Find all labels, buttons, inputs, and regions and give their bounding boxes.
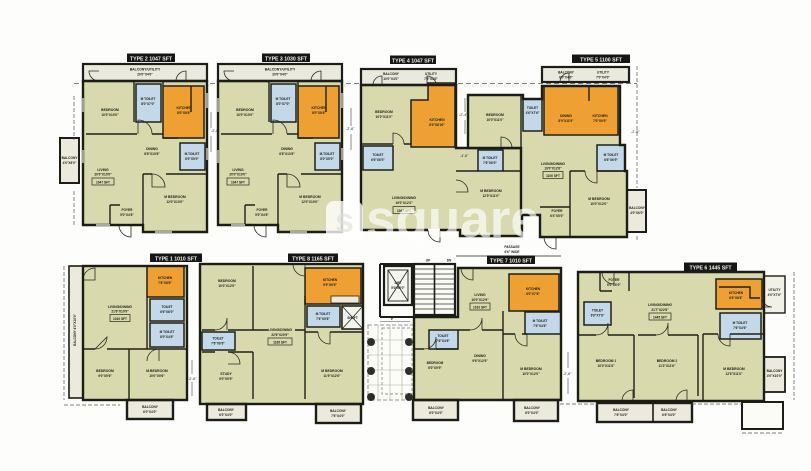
svg-text:BALCONY: BALCONY — [613, 408, 630, 412]
svg-text:6'6" WIDE: 6'6" WIDE — [504, 250, 519, 254]
svg-text:TYPE 5 1100 SFT: TYPE 5 1100 SFT — [580, 58, 623, 64]
svg-text:BEDROOM: BEDROOM — [427, 361, 444, 365]
svg-text:FOYER: FOYER — [609, 278, 621, 282]
svg-text:LIFT: LIFT — [395, 281, 402, 285]
svg-text:UTILITY: UTILITY — [768, 288, 781, 292]
svg-text:7'0"X9'0": 7'0"X9'0" — [593, 119, 607, 123]
svg-text:M TOILET: M TOILET — [604, 153, 619, 157]
svg-text:7'6"X4'6": 7'6"X4'6" — [533, 324, 547, 328]
svg-text:8'0"X4'6": 8'0"X4'6" — [160, 335, 174, 339]
svg-text:M BEDROOM: M BEDROOM — [723, 367, 745, 371]
svg-text:square: square — [366, 190, 540, 249]
svg-text:8'9"X11'9": 8'9"X11'9" — [558, 119, 574, 123]
svg-text:1445 SFT: 1445 SFT — [653, 316, 667, 320]
svg-text:-2'-6": -2'-6" — [631, 130, 640, 134]
svg-text:10'0"X11'6": 10'0"X11'6" — [597, 364, 615, 368]
svg-text:5'0"X5'0": 5'0"X5'0" — [391, 286, 405, 290]
svg-text:9'6"X12'9": 9'6"X12'9" — [472, 359, 488, 363]
svg-text:7'0"X4'0": 7'0"X4'0" — [596, 76, 610, 80]
svg-text:6'4"X5'0": 6'4"X5'0" — [550, 214, 564, 218]
svg-text:TYPE 2 1047 SFT: TYPE 2 1047 SFT — [130, 57, 173, 63]
svg-text:6'0"X9'9": 6'0"X9'9" — [428, 366, 442, 370]
svg-text:4'0"X6'0": 4'0"X6'0" — [63, 161, 77, 165]
svg-text:BALCONY: BALCONY — [218, 408, 235, 412]
svg-text:-2'-4": -2'-4" — [459, 113, 468, 117]
svg-text:10'0"X12'9": 10'0"X12'9" — [471, 298, 489, 302]
svg-text:-2'-6": -2'-6" — [346, 127, 355, 131]
svg-text:BALCONY: BALCONY — [767, 369, 784, 373]
svg-text:7'6"X8'6": 7'6"X8'6" — [158, 281, 172, 285]
svg-text:KITCHEN: KITCHEN — [729, 291, 744, 295]
svg-text:TYPE 3 1030 SFT: TYPE 3 1030 SFT — [265, 57, 308, 63]
svg-text:6'0"X4'0": 6'0"X4'0" — [219, 413, 233, 417]
svg-text:BEDROOM 2: BEDROOM 2 — [657, 359, 678, 363]
svg-text:10'0"X12'0": 10'0"X12'0" — [590, 202, 608, 206]
svg-text:KITCHEN: KITCHEN — [323, 278, 338, 282]
svg-text:9'9"X9'9": 9'9"X9'9" — [323, 283, 337, 287]
svg-text:4'6"X7'6": 4'6"X7'6" — [526, 111, 540, 115]
svg-text:-2'-6": -2'-6" — [211, 129, 220, 133]
svg-text:BALCONY: BALCONY — [428, 406, 445, 410]
svg-text:6'0"X4'0": 6'0"X4'0" — [143, 410, 157, 414]
svg-text:9'0"X7'6": 9'0"X7'6" — [526, 292, 540, 296]
svg-text:TYPE 1 1010 SFT: TYPE 1 1010 SFT — [155, 257, 198, 263]
svg-text:KITCHEN: KITCHEN — [429, 118, 445, 122]
svg-text:DN: DN — [447, 259, 452, 263]
svg-text:BALCONY: BALCONY — [142, 405, 159, 409]
svg-text:BEDROOM: BEDROOM — [96, 369, 114, 373]
svg-text:TYPE 4 1047 SFT: TYPE 4 1047 SFT — [392, 59, 435, 65]
svg-text:LIVING/DINING: LIVING/DINING — [268, 328, 292, 332]
svg-text:6'6"X6'0": 6'6"X6'0" — [160, 310, 174, 314]
svg-text:7'6"X6'6": 7'6"X6'6" — [211, 342, 225, 346]
svg-text:6'6"X6'9": 6'6"X6'9" — [604, 158, 618, 162]
svg-text:1165 SFT: 1165 SFT — [273, 341, 287, 345]
svg-text:STUDY: STUDY — [220, 372, 232, 376]
svg-text:FOYER: FOYER — [552, 209, 564, 213]
svg-text:9'0"X9'9": 9'0"X9'9" — [219, 377, 233, 381]
svg-text:10'0"X9'6": 10'0"X9'6" — [149, 374, 165, 378]
svg-text:8'0"X8'20": 8'0"X8'20" — [429, 123, 445, 127]
svg-text:22'6"X20'9": 22'6"X20'9" — [271, 333, 289, 337]
svg-text:9'0"X9'6": 9'0"X9'6" — [98, 374, 112, 378]
svg-text:7'6"X4'6": 7'6"X4'6" — [733, 326, 747, 330]
svg-text:BEDROOM: BEDROOM — [486, 113, 504, 117]
svg-text:-4'-6": -4'-6" — [460, 154, 469, 158]
svg-text:-2'-6": -2'-6" — [563, 372, 572, 376]
svg-text:6'6"X7'6": 6'6"X7'6" — [591, 314, 605, 318]
svg-text:M BEDROOM: M BEDROOM — [321, 369, 343, 373]
svg-text:7'6"X4'6": 7'6"X4'6" — [436, 339, 450, 343]
svg-text:7'6"X4'0": 7'6"X4'0" — [331, 414, 345, 418]
svg-text:6'6"X6'0": 6'6"X6'0" — [371, 158, 385, 162]
svg-text:10'0"X12'0": 10'0"X12'0" — [218, 284, 236, 288]
svg-text:19'0"X12'6": 19'0"X12'6" — [544, 167, 562, 171]
svg-text:LIVING/DINING: LIVING/DINING — [108, 305, 132, 309]
svg-text:BALCONY: BALCONY — [558, 71, 575, 75]
svg-text:11'2"X11'6": 11'2"X11'6" — [659, 364, 676, 368]
svg-text:6'0"X4'0": 6'0"X4'0" — [525, 411, 539, 415]
svg-text:KITCHEN: KITCHEN — [158, 276, 173, 280]
svg-text:TYPE 7 1010 SFT: TYPE 7 1010 SFT — [490, 259, 533, 265]
svg-text:1100 SFT: 1100 SFT — [546, 174, 560, 178]
svg-text:7'6"X5'6": 7'6"X5'6" — [316, 317, 330, 321]
svg-text:7'6"X6'0": 7'6"X6'0" — [483, 161, 497, 165]
svg-text:M TOILET: M TOILET — [733, 321, 748, 325]
svg-text:s: s — [335, 202, 354, 240]
svg-text:21'7"X22'6": 21'7"X22'6" — [651, 308, 669, 312]
svg-text:TOILET: TOILET — [437, 334, 448, 338]
svg-text:-2'-6": -2'-6" — [188, 377, 197, 381]
svg-text:4'0"X10'0": 4'0"X10'0" — [767, 374, 783, 378]
svg-text:M TOILET: M TOILET — [483, 156, 498, 160]
svg-text:LIVING: LIVING — [474, 293, 486, 297]
svg-text:11'9"X12'6": 11'9"X12'6" — [323, 374, 341, 378]
svg-text:LIVING/DINING: LIVING/DINING — [648, 303, 672, 307]
svg-text:4'0"X7'6": 4'0"X7'6" — [768, 293, 782, 297]
svg-text:BALCONY: BALCONY — [629, 206, 646, 210]
svg-text:BEDROOM: BEDROOM — [218, 279, 236, 283]
svg-text:6'6"X4'0": 6'6"X4'0" — [662, 413, 676, 417]
svg-text:BALCONY 4'0"X10'0": BALCONY 4'0"X10'0" — [73, 313, 77, 346]
svg-text:DINING: DINING — [560, 114, 572, 118]
svg-text:TOILET: TOILET — [527, 106, 538, 110]
svg-text:10'0"X11'0": 10'0"X11'0" — [486, 118, 504, 122]
svg-text:TOILET: TOILET — [372, 153, 383, 157]
svg-text:M TOILET: M TOILET — [160, 330, 175, 334]
svg-text:TOILET: TOILET — [161, 305, 172, 309]
svg-text:M TOILET: M TOILET — [533, 319, 548, 323]
svg-text:9': 9' — [391, 317, 394, 321]
svg-text:6'0"X6'0": 6'0"X6'0" — [607, 283, 621, 287]
svg-text:SHAFT: SHAFT — [347, 316, 358, 320]
svg-text:TYPE 8 1165 SFT: TYPE 8 1165 SFT — [292, 257, 335, 263]
svg-text:21'6"X10'9": 21'6"X10'9" — [111, 310, 129, 314]
svg-text:10'0"X4'0": 10'0"X4'0" — [383, 77, 399, 81]
svg-text:LIVING/DINING: LIVING/DINING — [541, 162, 565, 166]
svg-text:BALCONY: BALCONY — [62, 156, 79, 160]
svg-text:1010 SFT: 1010 SFT — [473, 306, 487, 310]
svg-text:TOILET: TOILET — [212, 337, 223, 341]
svg-text:BEDROOM 1: BEDROOM 1 — [596, 359, 617, 363]
svg-text:M BEDROOM: M BEDROOM — [588, 197, 610, 201]
svg-text:8'6"X8'6": 8'6"X8'6" — [729, 296, 743, 300]
svg-text:BALCONY: BALCONY — [330, 409, 347, 413]
svg-text:12'6"X11'0": 12'6"X11'0" — [725, 372, 743, 376]
svg-text:TYPE 6 1445 SFT: TYPE 6 1445 SFT — [689, 266, 732, 272]
svg-text:TOILET: TOILET — [592, 309, 603, 313]
svg-text:KITCHEN: KITCHEN — [526, 287, 541, 291]
svg-text:BEDROOM: BEDROOM — [375, 110, 393, 114]
svg-text:M BEDROOM: M BEDROOM — [520, 367, 542, 371]
svg-text:7'6"X4'0": 7'6"X4'0" — [424, 77, 438, 81]
svg-text:10'0"X12'0": 10'0"X12'0" — [522, 372, 540, 376]
svg-text:DINING: DINING — [474, 354, 486, 358]
svg-text:UTILITY: UTILITY — [597, 71, 610, 75]
svg-text:10'0"X11'0": 10'0"X11'0" — [375, 115, 393, 119]
svg-text:7'6"X4'0": 7'6"X4'0" — [614, 413, 628, 417]
svg-text:M.TOILET: M.TOILET — [316, 312, 331, 316]
svg-text:1010 SFT: 1010 SFT — [113, 317, 127, 321]
svg-text:M.BEDROOM: M.BEDROOM — [146, 369, 168, 373]
svg-text:BALCONY: BALCONY — [383, 72, 400, 76]
svg-text:6'0"X4'0": 6'0"X4'0" — [429, 411, 443, 415]
svg-text:BALCONY: BALCONY — [661, 408, 678, 412]
svg-text:4'0"X6'0": 4'0"X6'0" — [630, 211, 644, 215]
svg-text:KITCHEN: KITCHEN — [592, 114, 608, 118]
svg-text:BALCONY: BALCONY — [524, 406, 541, 410]
svg-text:UTILITY: UTILITY — [425, 72, 438, 76]
